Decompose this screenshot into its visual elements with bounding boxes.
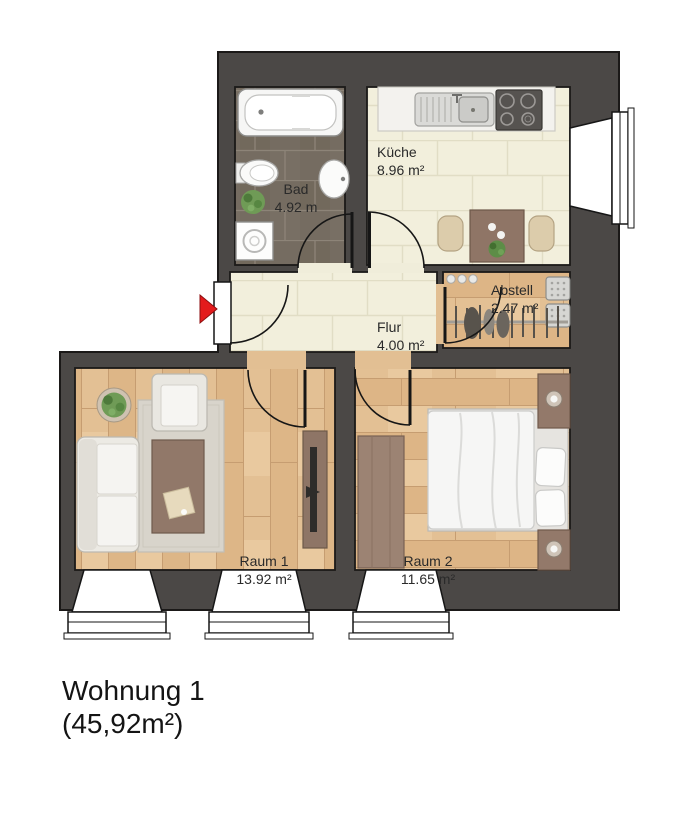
wall-hooks-icon bbox=[458, 275, 466, 283]
chair-icon bbox=[529, 216, 554, 251]
wardrobe-icon bbox=[358, 436, 404, 568]
room-area-flur: 4.00 m² bbox=[377, 337, 425, 353]
room-area-kueche: 8.96 m² bbox=[377, 162, 425, 178]
room-label-bad: Bad bbox=[284, 181, 309, 197]
chair-icon bbox=[438, 216, 463, 251]
room-area-abstell: 2.47 m² bbox=[491, 300, 539, 316]
plan-title: Wohnung 1 (45,92m²) bbox=[62, 675, 205, 739]
coffee-table-icon bbox=[152, 440, 204, 533]
room-area-raum1: 13.92 m² bbox=[236, 571, 292, 587]
room-label-abstell: Abstell bbox=[491, 282, 533, 298]
plan-title-line2: (45,92m²) bbox=[62, 708, 183, 739]
entrance-door bbox=[214, 282, 231, 344]
wall-hooks-icon bbox=[469, 275, 477, 283]
room-label-raum2: Raum 2 bbox=[403, 553, 452, 569]
window bbox=[570, 118, 612, 216]
table-plant-icon bbox=[489, 241, 506, 258]
pillow-icon bbox=[535, 447, 566, 486]
plan-title-line1: Wohnung 1 bbox=[62, 675, 205, 706]
room-label-flur: Flur bbox=[377, 319, 401, 335]
room-area-raum2: 11.65 m² bbox=[401, 571, 456, 587]
wall-hooks-icon bbox=[447, 275, 455, 283]
room-area-bad: 4.92 m bbox=[275, 199, 318, 215]
washing-machine-icon bbox=[236, 222, 273, 260]
pillow-icon bbox=[535, 489, 565, 526]
floor-plan-page: Bad 4.92 m Küche 8.96 m² Abstell 2.47 m²… bbox=[0, 0, 700, 818]
window bbox=[72, 570, 162, 612]
room-label-kueche: Küche bbox=[377, 144, 417, 160]
floor-plan: Bad 4.92 m Küche 8.96 m² Abstell 2.47 m²… bbox=[0, 0, 700, 818]
room-label-raum1: Raum 1 bbox=[239, 553, 288, 569]
